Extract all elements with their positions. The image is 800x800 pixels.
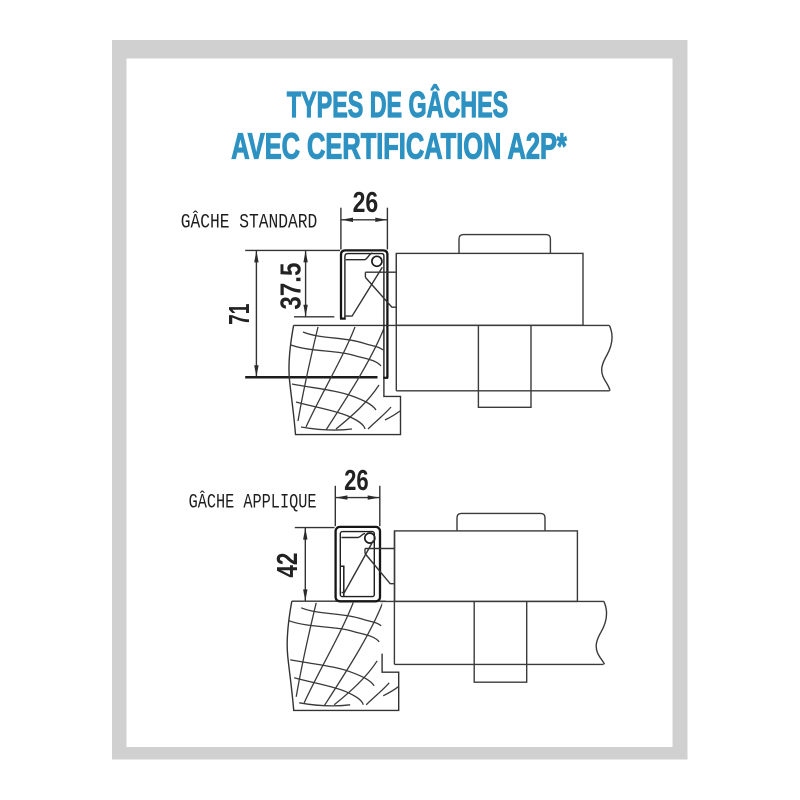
svg-text:26: 26 <box>353 187 379 219</box>
svg-text:AVEC CERTIFICATION A2P*: AVEC CERTIFICATION A2P* <box>231 125 567 166</box>
svg-text:GÂCHE APPLIQUE: GÂCHE APPLIQUE <box>189 490 317 514</box>
svg-text:TYPES DE GÂCHES: TYPES DE GÂCHES <box>287 83 508 125</box>
svg-text:37.5: 37.5 <box>275 263 307 310</box>
svg-text:42: 42 <box>272 553 304 578</box>
svg-text:26: 26 <box>344 465 369 497</box>
svg-text:71: 71 <box>224 304 256 325</box>
svg-text:GÂCHE STANDARD: GÂCHE STANDARD <box>181 210 318 234</box>
